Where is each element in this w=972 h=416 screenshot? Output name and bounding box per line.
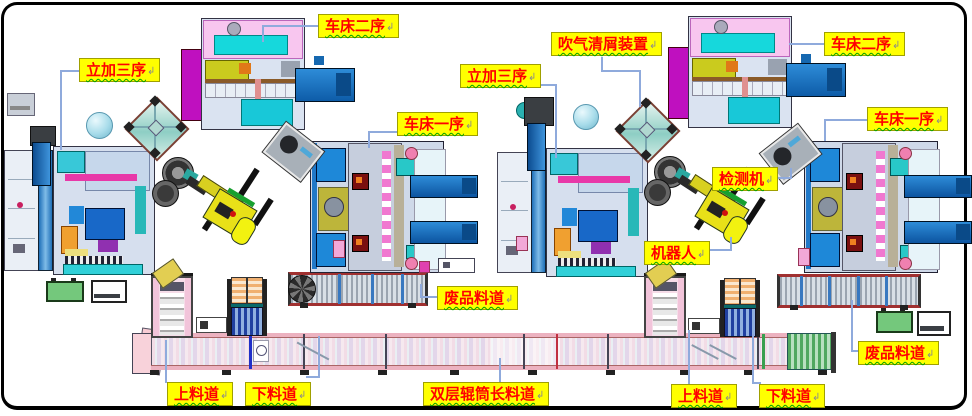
machine-part	[222, 370, 231, 375]
label-lathe-op1-right: 车床一序↲	[867, 107, 948, 131]
machine-part: 立加三序	[86, 61, 146, 79]
label-lathe-op1-mid: 车床一序↲	[397, 112, 478, 136]
machine-part	[32, 142, 51, 186]
machine-part	[462, 224, 476, 240]
paragraph-mark: ↲	[812, 392, 820, 403]
machine-part	[528, 370, 537, 375]
leader-line	[368, 131, 370, 148]
paragraph-mark: ↲	[505, 294, 513, 305]
machine-part	[385, 334, 387, 369]
machine-part	[524, 97, 554, 126]
machine-part	[371, 274, 374, 304]
label-lathe-op2-right: 车床二序↲	[824, 32, 905, 56]
machine-part	[324, 197, 344, 217]
machine-part	[238, 168, 259, 196]
machine-part: 下料道	[766, 387, 811, 405]
label-scrap-chute-mid: 废品料道↲	[437, 286, 518, 310]
machine-part	[356, 239, 362, 245]
machine-part	[160, 293, 184, 335]
paragraph-mark: ↲	[697, 249, 705, 260]
label-loading-lane-right: 上料道↲	[671, 384, 737, 408]
machine-part	[722, 210, 728, 216]
lathe-op1-machine-right	[804, 135, 972, 275]
machine-part	[850, 239, 856, 245]
machine-part	[920, 326, 944, 331]
machine-part	[8, 238, 35, 239]
green-pallet-left	[46, 281, 84, 302]
paragraph-mark: ↲	[765, 175, 773, 186]
machine-part	[405, 257, 418, 270]
machine-part	[338, 274, 341, 304]
machine-part	[692, 322, 700, 330]
white-box-left	[91, 280, 127, 303]
machine-part	[956, 224, 970, 240]
paragraph-mark: ↲	[147, 66, 155, 77]
machine-part	[810, 233, 840, 267]
paragraph-mark: ↲	[465, 120, 473, 131]
leader-line	[262, 25, 264, 42]
paragraph-mark: ↲	[386, 22, 394, 33]
label-unloading-lane-right: 下料道↲	[759, 384, 825, 408]
machine-part	[501, 210, 528, 211]
label-loading-lane-left: 上料道↲	[167, 382, 233, 406]
machine-part: 废品料道	[444, 289, 504, 307]
machine-part	[562, 208, 577, 226]
small-gray-cabinet	[7, 93, 35, 116]
machine-part	[678, 278, 684, 336]
machine-part	[762, 334, 765, 369]
white-box-right	[917, 311, 951, 336]
leader-line	[368, 131, 397, 133]
leader-line	[752, 334, 754, 384]
machine-part: 机器人	[651, 244, 696, 262]
machine-part	[606, 370, 615, 375]
paragraph-mark: ↲	[298, 390, 306, 401]
machine-part	[556, 266, 636, 277]
paragraph-mark: ↲	[528, 72, 536, 83]
leader-line	[165, 340, 167, 383]
machine-part	[462, 178, 476, 194]
machine-part	[65, 256, 123, 264]
machine-part	[51, 278, 56, 281]
machine-part	[300, 303, 308, 308]
vmc-op3-machine-left	[4, 146, 154, 273]
machine-part	[13, 244, 25, 253]
machine-part	[885, 276, 888, 306]
machine-part	[900, 308, 905, 311]
machine-part	[239, 63, 251, 74]
fan-icon	[714, 20, 728, 34]
machine-part	[828, 276, 831, 306]
machine-part	[69, 206, 84, 224]
machine-part	[214, 35, 288, 55]
label-double-roller-conveyor: 双层辊筒长料道↲	[423, 382, 549, 406]
leader-line	[730, 237, 732, 251]
machine-part	[356, 177, 362, 183]
machine-part: 废品料道	[865, 344, 925, 362]
unloading-stacker-left	[227, 277, 267, 337]
paragraph-mark: ↲	[649, 40, 657, 51]
machine-part	[63, 264, 143, 275]
machine-part	[908, 149, 940, 270]
machine-part	[739, 278, 741, 305]
leader-line	[555, 84, 557, 158]
scrap-conveyor-right	[777, 274, 921, 308]
machine-part	[71, 278, 76, 281]
label-scrap-chute-right: 废品料道↲	[858, 341, 939, 365]
paragraph-mark: ↲	[935, 115, 943, 126]
lathe-op2-machine-right	[668, 14, 840, 128]
machine-part	[230, 211, 236, 217]
machine-part	[607, 334, 609, 369]
machine-part	[443, 262, 450, 268]
machine-part: 双层辊筒长料道	[430, 385, 535, 403]
machine-part	[558, 176, 630, 183]
label-vmc-op3-mid: 立加三序↲	[460, 64, 541, 88]
label-unloading-lane-left: 下料道↲	[245, 382, 311, 406]
leader-line	[499, 358, 501, 383]
air-blow-device-left	[123, 95, 187, 159]
machine-part	[205, 83, 303, 98]
machine-part	[644, 179, 671, 206]
machine-part	[956, 178, 970, 194]
pink-post	[798, 248, 810, 266]
leader-line	[262, 25, 319, 27]
control-box-left	[196, 317, 227, 333]
machine-part	[876, 151, 885, 261]
machine-part	[692, 81, 790, 96]
machine-part: 上料道	[174, 385, 219, 403]
gantry-loader-left	[28, 126, 78, 188]
sphere-decoration-left	[86, 112, 113, 139]
machine-part	[382, 151, 391, 261]
machine-part	[653, 293, 677, 335]
leader-line	[60, 70, 79, 72]
machine-part	[827, 68, 842, 91]
paragraph-mark: ↲	[724, 392, 732, 403]
machine-part	[818, 370, 827, 375]
machine-part	[801, 54, 811, 63]
gantry-loader-mid	[516, 96, 566, 174]
machine-part	[501, 181, 528, 182]
machine-part	[303, 334, 305, 369]
gear-icon	[288, 275, 316, 303]
unloading-stacker-right	[720, 278, 760, 338]
leader-line	[851, 300, 853, 352]
machine-part	[768, 59, 787, 75]
machine-part	[831, 332, 836, 373]
machine-part	[728, 97, 780, 124]
machine-part	[510, 204, 516, 210]
fan-icon	[227, 22, 241, 36]
machine-part	[724, 308, 756, 337]
machine-part	[314, 56, 324, 65]
machine-part	[790, 305, 798, 310]
pink-post	[419, 261, 430, 273]
machine-part	[578, 210, 618, 242]
machine-part: 立加三序	[467, 67, 527, 85]
machine-part	[628, 188, 639, 236]
machine-part	[414, 149, 446, 270]
machine-part	[231, 307, 263, 336]
pink-post	[333, 240, 345, 258]
machine-part	[152, 180, 179, 207]
machine-part	[556, 334, 558, 369]
machine-part: 上料道	[678, 387, 723, 405]
paragraph-mark: ↲	[926, 349, 934, 360]
machine-part	[881, 308, 886, 311]
machine-part	[818, 197, 838, 217]
machine-part	[405, 147, 418, 160]
label-air-blow-device: 吹气清屑装置↲	[551, 32, 662, 56]
machine-part	[527, 123, 546, 171]
machine-part	[757, 334, 759, 369]
leader-line	[318, 336, 320, 378]
machine-part	[726, 61, 738, 72]
machine-part	[94, 294, 120, 298]
machine-part	[899, 147, 912, 160]
machine-part	[850, 177, 856, 183]
leader-line	[824, 119, 826, 141]
label-vmc-op3-left: 立加三序↲	[79, 58, 160, 82]
machine-part	[185, 278, 191, 336]
sphere-decoration-right	[573, 104, 599, 130]
machine-part	[899, 257, 912, 270]
machine-part: 吹气清屑装置	[558, 35, 648, 53]
leader-line	[639, 70, 641, 107]
scrap-conveyor-mid	[288, 272, 428, 306]
machine-part	[701, 33, 775, 53]
machine-part	[8, 208, 35, 209]
paragraph-mark: ↲	[220, 390, 228, 401]
machine-part	[200, 321, 208, 329]
machine-part	[85, 208, 125, 240]
machine-part	[523, 334, 525, 369]
machine-part	[153, 278, 159, 336]
machine-part	[378, 370, 387, 375]
machine-part	[591, 242, 611, 254]
label-lathe-op2-left: 车床二序↲	[318, 14, 399, 38]
factory-layout-figure: 立加三序↲ 车床二序↲ 吹气清屑装置↲ 立加三序↲ 车床一序↲ 车床二序↲ 车床…	[0, 0, 972, 416]
leader-line	[824, 119, 868, 121]
machine-part: 车床二序	[831, 35, 891, 53]
leader-line	[688, 330, 690, 385]
machine-part	[336, 73, 351, 96]
machine-part: 车床一序	[404, 115, 464, 133]
machine-part	[246, 277, 248, 304]
green-pallet-right	[876, 311, 913, 333]
machine-part	[401, 274, 404, 304]
machine-part	[800, 276, 803, 306]
label-robot: 机器人↲	[644, 241, 710, 265]
machine-part	[151, 365, 834, 370]
loading-stacker-right	[644, 276, 686, 338]
machine-part	[787, 333, 832, 370]
control-box-right	[688, 318, 720, 334]
label-inspection-machine: 检测机↲	[712, 167, 778, 191]
machine-part: 车床二序	[325, 17, 385, 35]
machine-part	[98, 240, 118, 252]
machine-part	[777, 274, 921, 308]
machine-part	[150, 370, 159, 375]
paragraph-mark: ↲	[536, 390, 544, 401]
machine-part	[857, 276, 860, 306]
robot-left	[150, 153, 280, 248]
white-box-mid	[438, 258, 475, 273]
machine-part	[132, 333, 153, 374]
machine-part	[408, 303, 416, 308]
machine-part	[249, 334, 252, 369]
paragraph-mark: ↲	[892, 40, 900, 51]
leader-line	[306, 376, 320, 378]
leader-line	[790, 168, 792, 179]
machine-part: 下料道	[252, 385, 297, 403]
leader-line	[789, 43, 825, 45]
leader-line	[601, 70, 641, 72]
machine-part	[300, 370, 309, 375]
machine-part	[135, 186, 146, 234]
loading-stacker-left	[151, 276, 193, 338]
machine-part	[17, 202, 23, 208]
machine-part	[10, 106, 30, 110]
machine-part	[256, 345, 267, 356]
pink-post	[516, 236, 528, 251]
machine-part	[646, 278, 652, 336]
machine-part: 车床一序	[874, 110, 934, 128]
leader-line	[60, 70, 62, 150]
leader-line	[420, 296, 438, 298]
machine-part	[558, 258, 616, 266]
machine-part	[450, 370, 459, 375]
machine-part: 检测机	[719, 170, 764, 188]
